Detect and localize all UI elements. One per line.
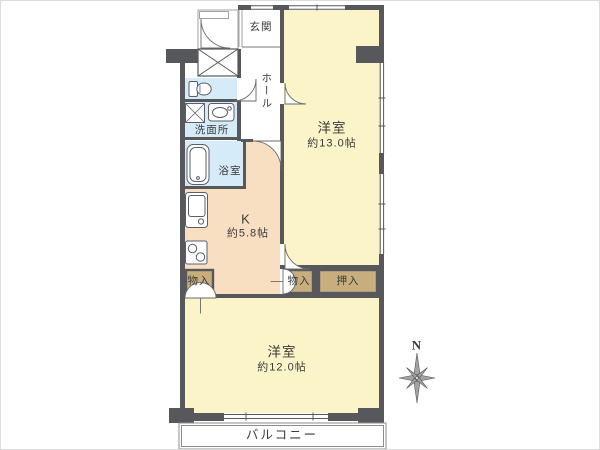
toilet-icon xyxy=(189,82,211,97)
bedroom2-label: 洋室 xyxy=(268,345,297,359)
floorplan-drawing xyxy=(1,1,600,450)
compass-icon xyxy=(399,353,435,403)
balcony-label: バルコニー xyxy=(246,429,318,442)
shaft-x-box xyxy=(198,49,238,76)
washing-machine-pan-icon xyxy=(186,104,205,123)
hall-label: ホール xyxy=(261,72,272,110)
toilet-door xyxy=(234,79,256,101)
genkan-doorframe xyxy=(239,10,242,47)
bedroom2-size: 約12.0帖 xyxy=(257,363,306,374)
genkan-label: 玄関 xyxy=(250,22,273,33)
storage-left-label: 物入 xyxy=(188,276,211,287)
entrance-porch-step xyxy=(200,12,229,19)
oshiire-label: 押入 xyxy=(337,276,360,287)
bedroom1-size: 約13.0帖 xyxy=(307,139,356,150)
kitchen-label: K xyxy=(241,213,251,226)
washbasin-icon xyxy=(209,104,235,122)
bedroom1-label: 洋室 xyxy=(318,121,347,135)
storage-mid-label: 物入 xyxy=(288,276,311,287)
kitchen-size: 約5.8帖 xyxy=(227,229,269,240)
stove-icon xyxy=(186,241,208,264)
bathtub-icon xyxy=(187,145,209,185)
compass-north-label: N xyxy=(412,339,422,352)
kitchen-sink-icon xyxy=(186,193,208,228)
bathroom-label: 浴室 xyxy=(219,166,242,177)
washroom-label: 洗面所 xyxy=(195,125,230,136)
floorplan-image: 玄関 ホール 洗面所 浴室 K 約5.8帖 洋室 約13.0帖 物入 物入 押入… xyxy=(0,0,600,450)
